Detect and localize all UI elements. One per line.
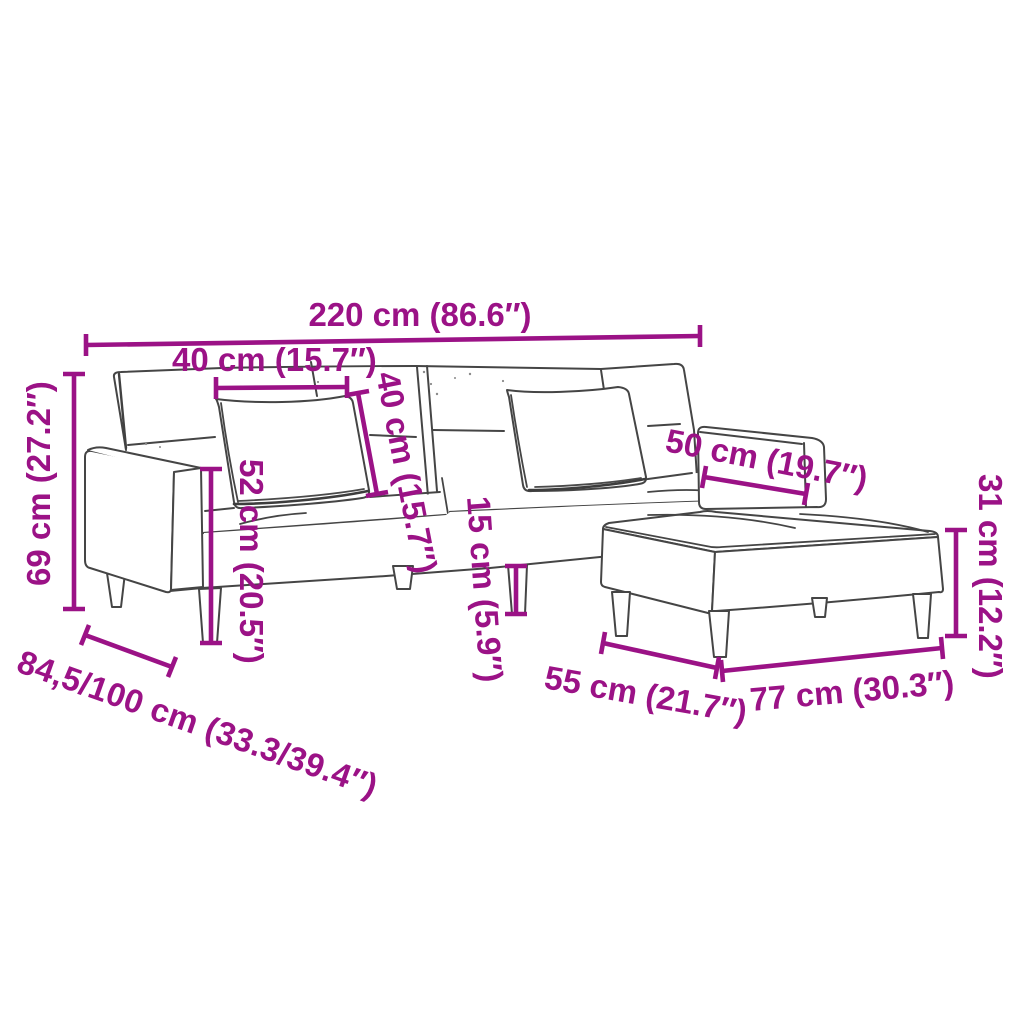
svg-text:52 cm (20.5″): 52 cm (20.5″) (233, 459, 270, 664)
svg-text:220 cm (86.6″): 220 cm (86.6″) (308, 296, 531, 333)
svg-text:40 cm (15.7″): 40 cm (15.7″) (172, 341, 377, 378)
svg-text:69 cm (27.2″): 69 cm (27.2″) (20, 381, 57, 586)
svg-text:31 cm (12.2″): 31 cm (12.2″) (972, 474, 1009, 679)
